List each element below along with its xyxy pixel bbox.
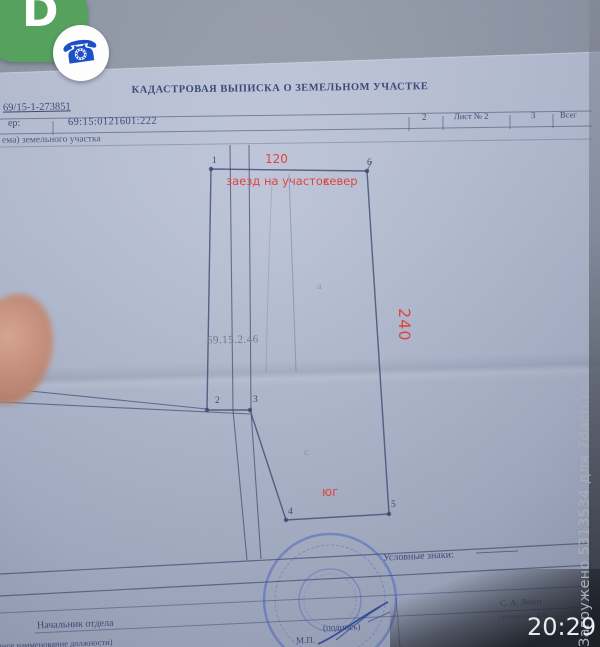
- annotation-width: 120: [265, 152, 288, 166]
- stamp-caption: М.П.: [296, 635, 315, 646]
- point-label-4: 4: [288, 507, 293, 517]
- point-label-1: 1: [212, 156, 217, 166]
- parcel-plan-lines: [0, 0, 600, 647]
- point-label-5: 5: [391, 500, 396, 510]
- inner-division-line: [289, 174, 296, 371]
- cadastral-number: 69:15:0121601:222: [68, 116, 157, 128]
- annotation-entrance: заезд на участок: [226, 174, 330, 188]
- pencil-mark-a: а: [317, 281, 321, 292]
- header-col-b: 3: [531, 110, 536, 120]
- pencil-mark-c: с: [304, 446, 309, 458]
- photo-of-cadastral-document: КАДАСТРОВАЯ ВЫПИСКА О ЗЕМЕЛЬНОМ УЧАСТКЕ …: [0, 0, 600, 647]
- header-label-fragment: ер:: [8, 118, 20, 129]
- header-col-a: 2: [422, 112, 427, 122]
- app-bubble-letter: D: [22, 0, 59, 37]
- annotation-north: север: [323, 174, 358, 188]
- annotation-length: 240: [395, 308, 414, 342]
- status-clock: 20:29: [527, 613, 596, 641]
- phone-icon: ☎: [60, 36, 101, 71]
- section-caption: ема) земельного участка: [2, 134, 101, 146]
- point-label-6: 6: [367, 158, 372, 168]
- header-col-sheet: Лист № 2: [454, 111, 489, 122]
- document-number: 69/15-1-273851: [3, 101, 71, 113]
- legend-dash: [476, 551, 518, 553]
- point-label-3: 3: [253, 395, 258, 405]
- signature-caption: (подпись): [323, 621, 361, 632]
- point-label-2: 2: [215, 396, 220, 406]
- phone-bubble[interactable]: ☎: [53, 25, 109, 81]
- parcel-number-label: 69.15.2.46: [207, 334, 259, 347]
- inner-crease-line: [266, 180, 272, 372]
- header-col-total-fragment: Всег: [560, 109, 577, 119]
- annotation-south: юг: [322, 485, 338, 499]
- watermark-vertical: Загружено 5313534 для 7dach.ru: [577, 383, 593, 647]
